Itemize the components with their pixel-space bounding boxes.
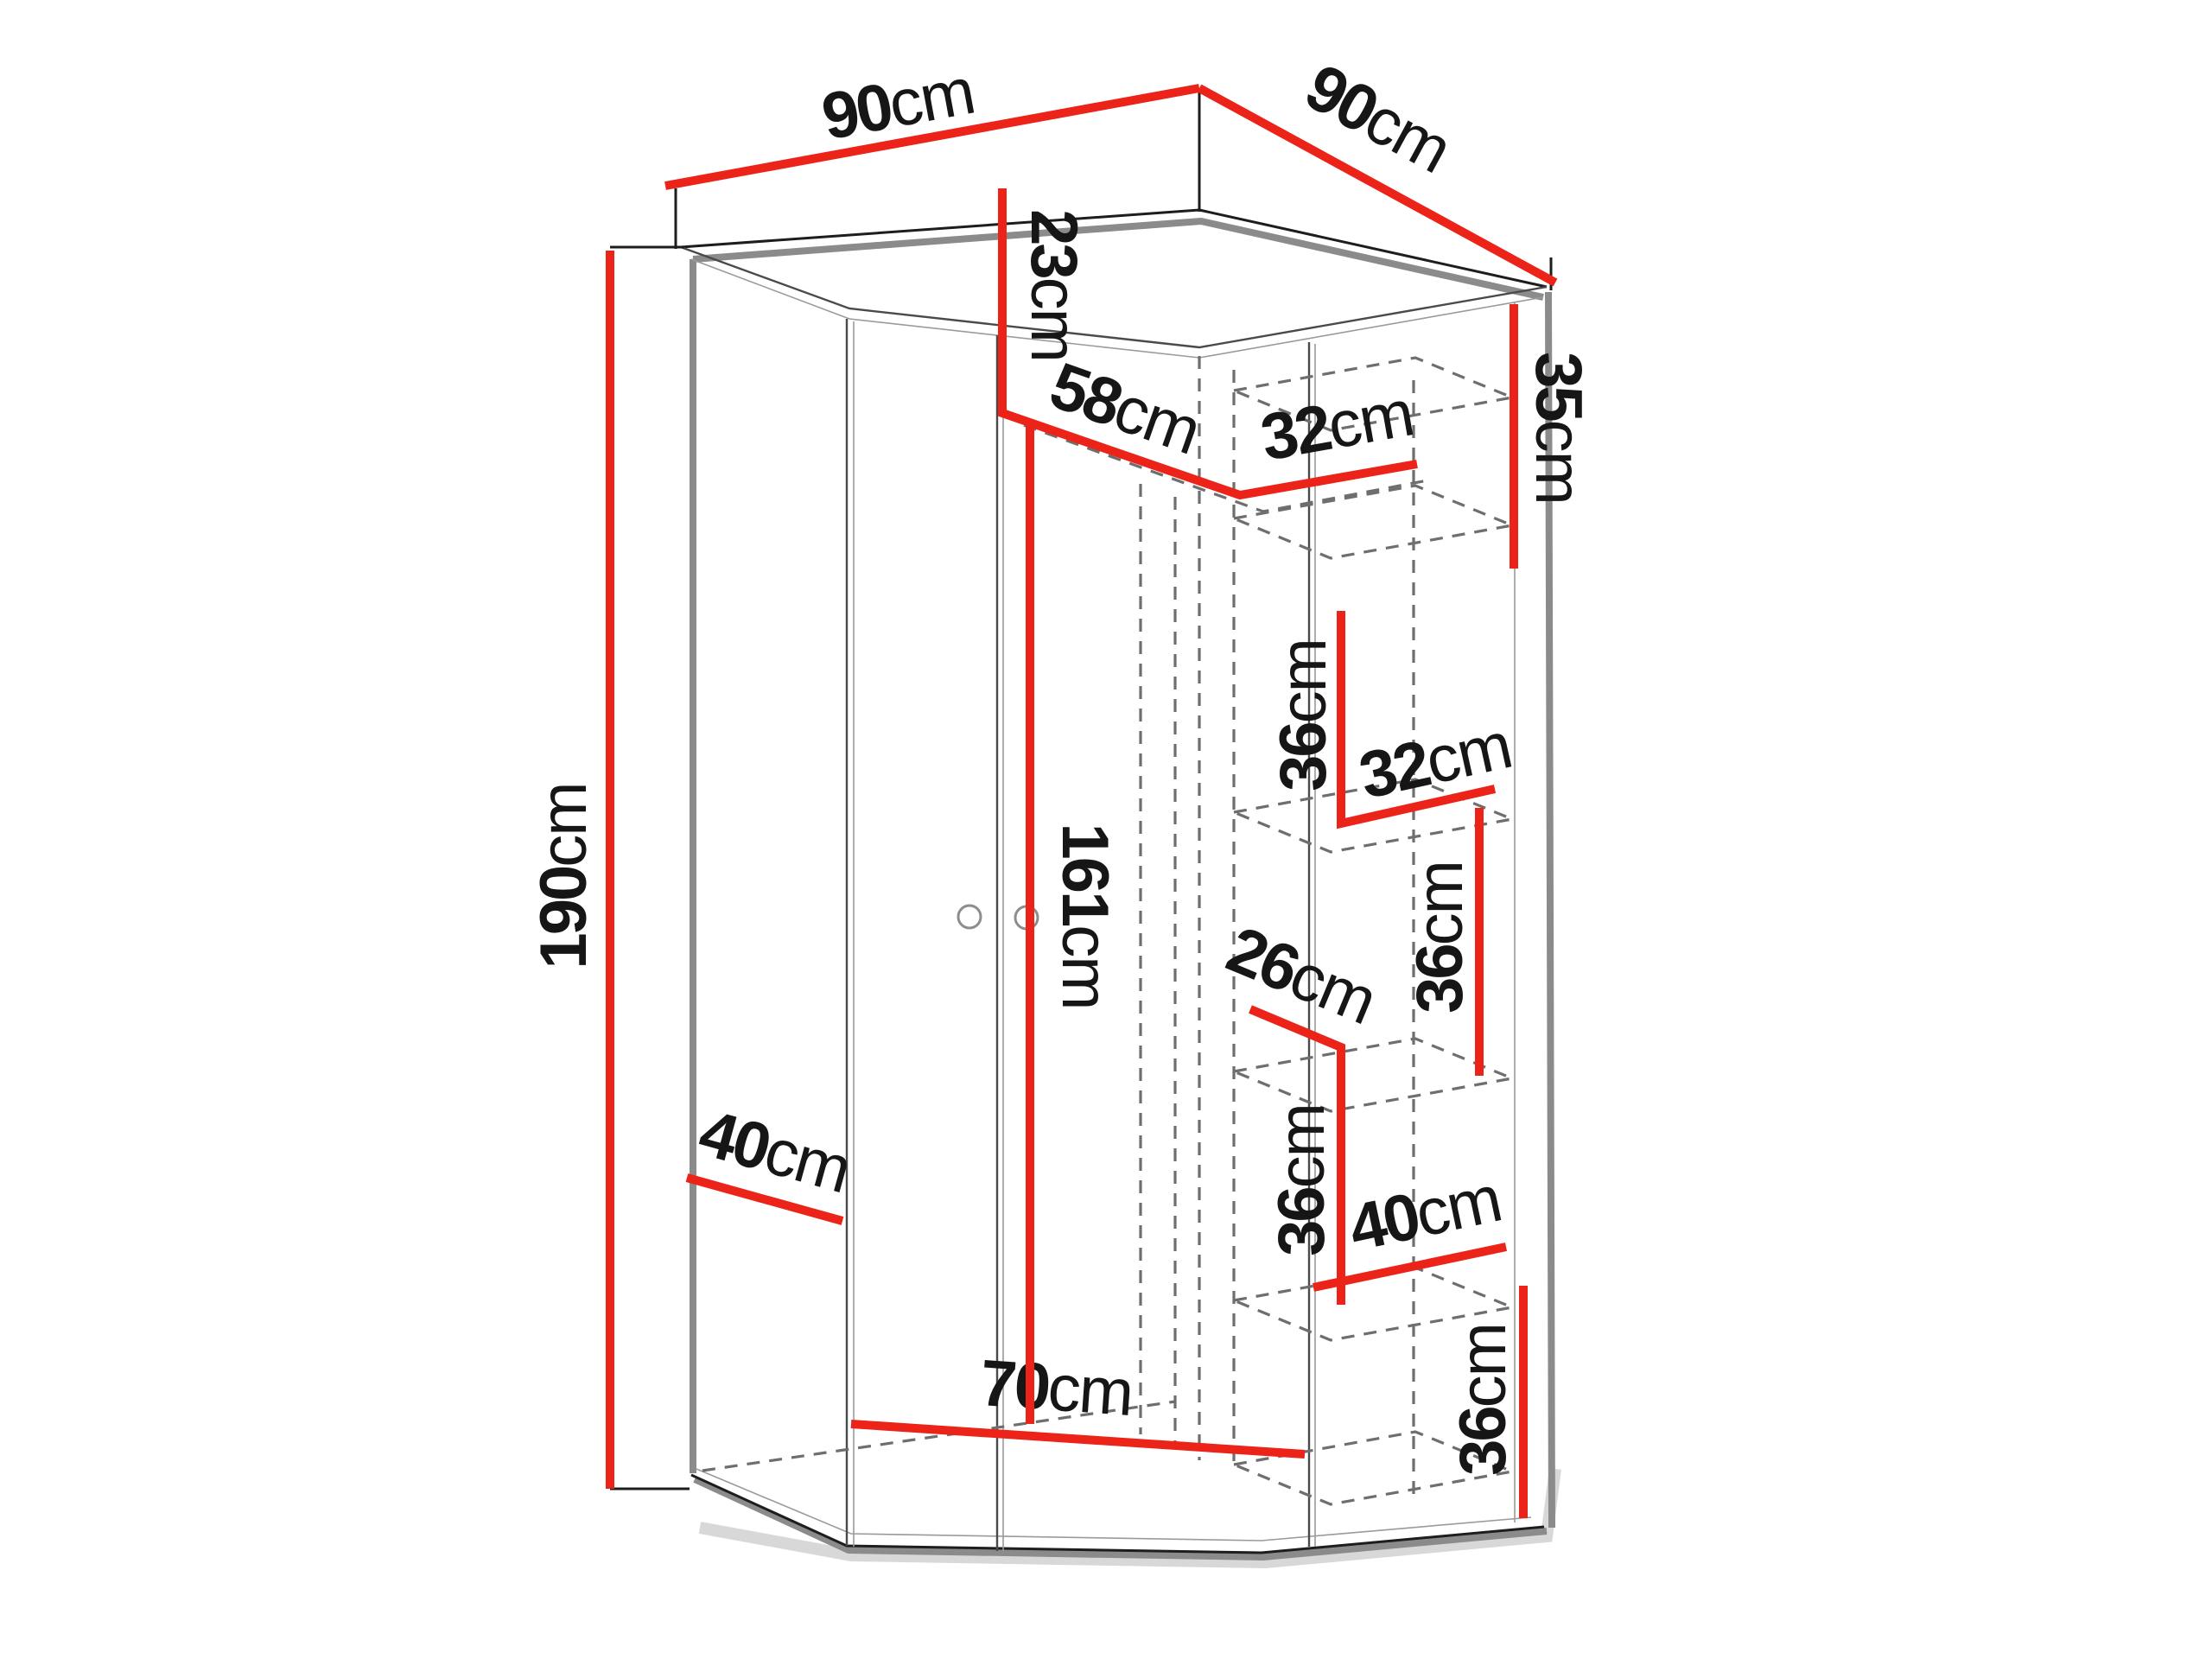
dimension-top-shelf-gap: 35cm	[1514, 304, 1595, 569]
diagram-canvas: 90cm 90cm 23cm 58cm 32cm 35cm 36cm 32cm …	[0, 0, 2212, 1659]
dimension-label-total-height: 190cm	[527, 783, 601, 969]
dimension-label-shelf-gap-2: 36cm	[1403, 861, 1477, 1014]
dimension-side-panel-depth: 40cm	[687, 1096, 858, 1221]
dimension-label-shelf-gap-4: 36cm	[1446, 1324, 1520, 1476]
left-door-handle	[958, 906, 981, 928]
dimension-line-bottom-front-width	[851, 1424, 1305, 1454]
wardrobe-dimension-diagram: 90cm 90cm 23cm 58cm 32cm 35cm 36cm 32cm …	[0, 0, 2212, 1659]
dimension-label-shelf-depth: 26cm	[1217, 912, 1386, 1039]
dimension-top-width-right: 90cm	[1199, 50, 1555, 283]
dimension-label-shelf-gap-1: 36cm	[1267, 639, 1340, 791]
top-front-edge-inner	[691, 259, 1543, 358]
dimension-label-middle-shelf-width: 32cm	[1353, 709, 1517, 813]
cast-shadow	[700, 1469, 1555, 1562]
dimension-total-height: 190cm	[527, 251, 610, 1489]
dimension-label-upper-shelf-width: 32cm	[1255, 377, 1418, 475]
dimension-shelf-gap-1-and-middle-width: 36cm 32cm	[1267, 611, 1517, 823]
dimension-label-door-front-width: 58cm	[1041, 348, 1209, 468]
shadow-under-cabinet	[700, 1469, 1555, 1562]
dimension-label-top-shelf-gap: 35cm	[1522, 352, 1595, 504]
dimension-shelf-gap-4: 36cm	[1446, 1286, 1523, 1518]
dimension-bottom-front-width: 70cm	[851, 1346, 1305, 1454]
dimension-top-offset-and-front-widths: 23cm 58cm 32cm	[1002, 188, 1418, 495]
top-front-edge	[681, 247, 1547, 347]
dimension-label-shelf-gap-3: 36cm	[1265, 1104, 1338, 1256]
dimension-label-side-panel-depth: 40cm	[691, 1096, 857, 1207]
dimension-label-top-width-right: 90cm	[1294, 50, 1462, 188]
dimension-label-interior-height: 161cm	[1048, 823, 1122, 1008]
dimension-label-bottom-front-width: 70cm	[978, 1346, 1135, 1430]
shelf-board-1	[1234, 486, 1512, 558]
dimension-top-width-left: 90cm	[665, 54, 1199, 186]
top-edge-shadow	[693, 221, 1543, 297]
dimension-interior-height: 161cm	[1030, 423, 1122, 1424]
dimension-label-top-offset: 23cm	[1017, 209, 1090, 361]
shelf-board-3	[1234, 1039, 1512, 1111]
plinth-line	[696, 1469, 1531, 1541]
dimension-label-top-width-left: 90cm	[817, 54, 979, 155]
